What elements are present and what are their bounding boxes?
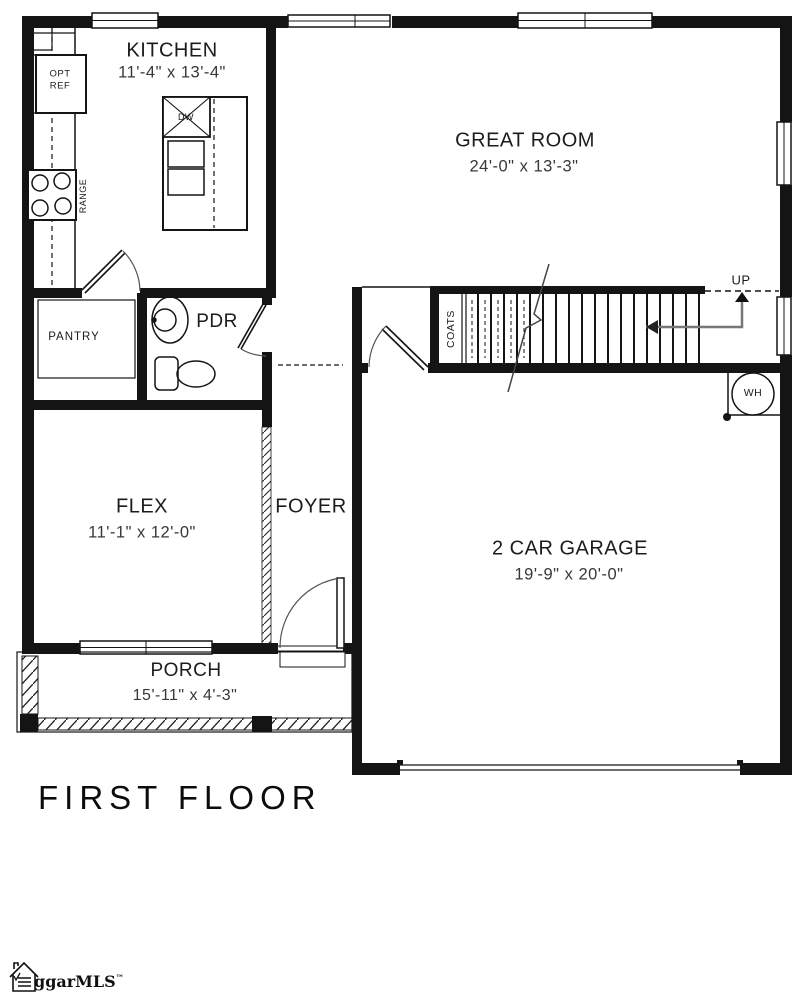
pantry-door — [82, 250, 140, 293]
kitchen-dims: 11'-4" x 13'-4" — [118, 64, 226, 83]
foyer-label: FOYER — [275, 496, 346, 519]
water-heater-label: WH — [744, 387, 763, 399]
flex-dims: 11'-1" x 12'-0" — [88, 524, 196, 543]
floor-plan: KITCHEN 11'-4" x 13'-4" GREAT ROOM 24'-0… — [0, 0, 800, 1000]
garage-entry-door — [369, 326, 428, 370]
range-label: RANGE — [78, 179, 88, 214]
powder-sink — [152, 297, 188, 343]
walls — [22, 16, 792, 775]
floor-title: FIRST FLOOR — [38, 779, 322, 817]
toilet — [155, 357, 215, 390]
garage-door — [400, 765, 740, 770]
mls-watermark: ggarMLS™ — [34, 972, 124, 991]
great-room-dims: 24'-0" x 13'-3" — [470, 158, 579, 177]
coats-closet-label: COATS — [445, 310, 457, 348]
cased-opening — [262, 427, 271, 645]
opt-ref-label-line1: OPT — [49, 69, 70, 80]
garage-dims: 19'-9" x 20'-0" — [515, 566, 624, 585]
mls-watermark-tm: ™ — [116, 973, 124, 983]
flex-label: FLEX — [116, 496, 168, 519]
stairs-up-label: UP — [731, 273, 750, 288]
kitchen-island — [163, 97, 247, 230]
kitchen-label: KITCHEN — [126, 40, 217, 63]
front-door — [278, 578, 344, 651]
dishwasher-label: DW — [178, 112, 194, 122]
powder-room-label: PDR — [196, 311, 238, 333]
opt-ref-label-line2: REF — [50, 81, 71, 92]
porch-dims: 15'-11" x 4'-3" — [133, 687, 238, 705]
garage-label: 2 CAR GARAGE — [492, 538, 648, 561]
mls-watermark-brand: ggarMLS — [34, 972, 116, 991]
stairs-up-arrow — [646, 292, 749, 334]
pantry-label: PANTRY — [48, 331, 100, 343]
great-room-label: GREAT ROOM — [455, 130, 595, 153]
powder-door — [238, 304, 266, 356]
porch-label: PORCH — [150, 660, 221, 682]
range-cooktop — [28, 170, 76, 220]
